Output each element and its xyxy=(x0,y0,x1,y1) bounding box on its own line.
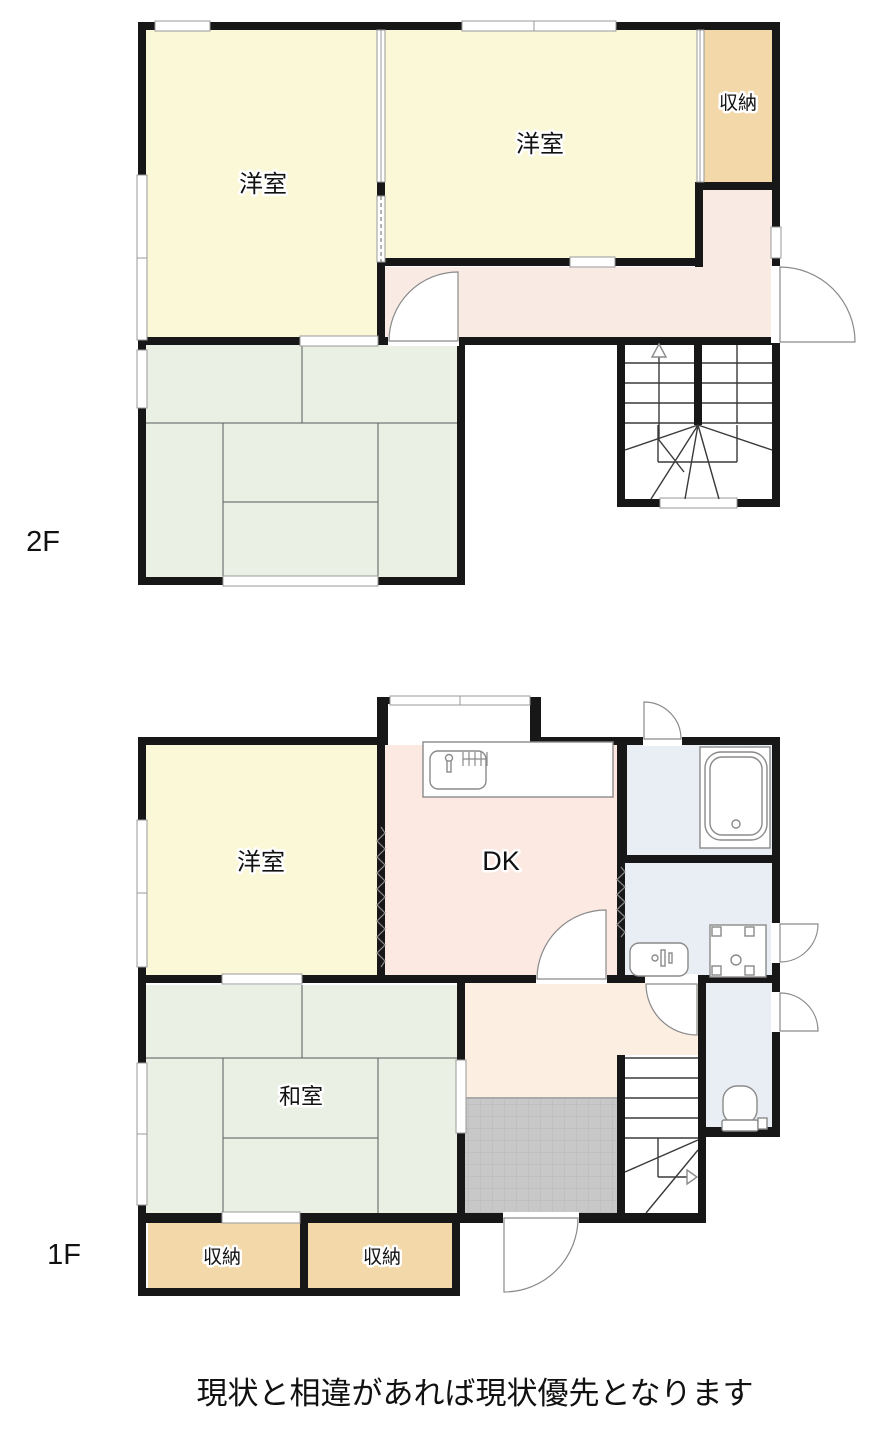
caption: 現状と相違があれば現状優先となります xyxy=(196,1376,753,1411)
room-2f-hallway-leg xyxy=(703,190,772,267)
floorplan-2f: 洋室 洋室 収納 2F xyxy=(26,21,855,586)
room-label-1f-western: 洋室 xyxy=(237,849,285,876)
room-label-2f-western-right: 洋室 xyxy=(516,131,564,158)
washbasin-icon xyxy=(630,943,688,976)
room-label-1f-storage-right: 収納 xyxy=(363,1246,401,1268)
room-label-1f-dk: DK xyxy=(482,846,520,876)
floor-label-1f: 1F xyxy=(47,1239,81,1271)
room-label-2f-storage: 収納 xyxy=(719,92,757,114)
genkan-tile xyxy=(465,1098,617,1213)
room-1f-stairwell xyxy=(625,1058,698,1213)
room-label-2f-western-left: 洋室 xyxy=(239,171,287,198)
room-1f-kitchen-alcove xyxy=(388,703,530,745)
washing-machine-pan-icon xyxy=(710,925,766,977)
room-label-1f-storage-left: 収納 xyxy=(203,1246,241,1268)
room-label-1f-japanese: 和室 xyxy=(279,1084,323,1109)
floor-plan-drawing: 洋室 洋室 収納 2F xyxy=(0,0,883,1438)
room-1f-hallway-lower xyxy=(465,1055,617,1098)
kitchen-sink-icon xyxy=(423,742,613,797)
bathtub-icon xyxy=(700,747,770,848)
floor-label-2f: 2F xyxy=(26,526,60,558)
floor-plan-page: 洋室 洋室 収納 2F xyxy=(0,0,883,1438)
floorplan-1f: 洋室 DK 和室 収納 収納 1F xyxy=(47,696,818,1296)
